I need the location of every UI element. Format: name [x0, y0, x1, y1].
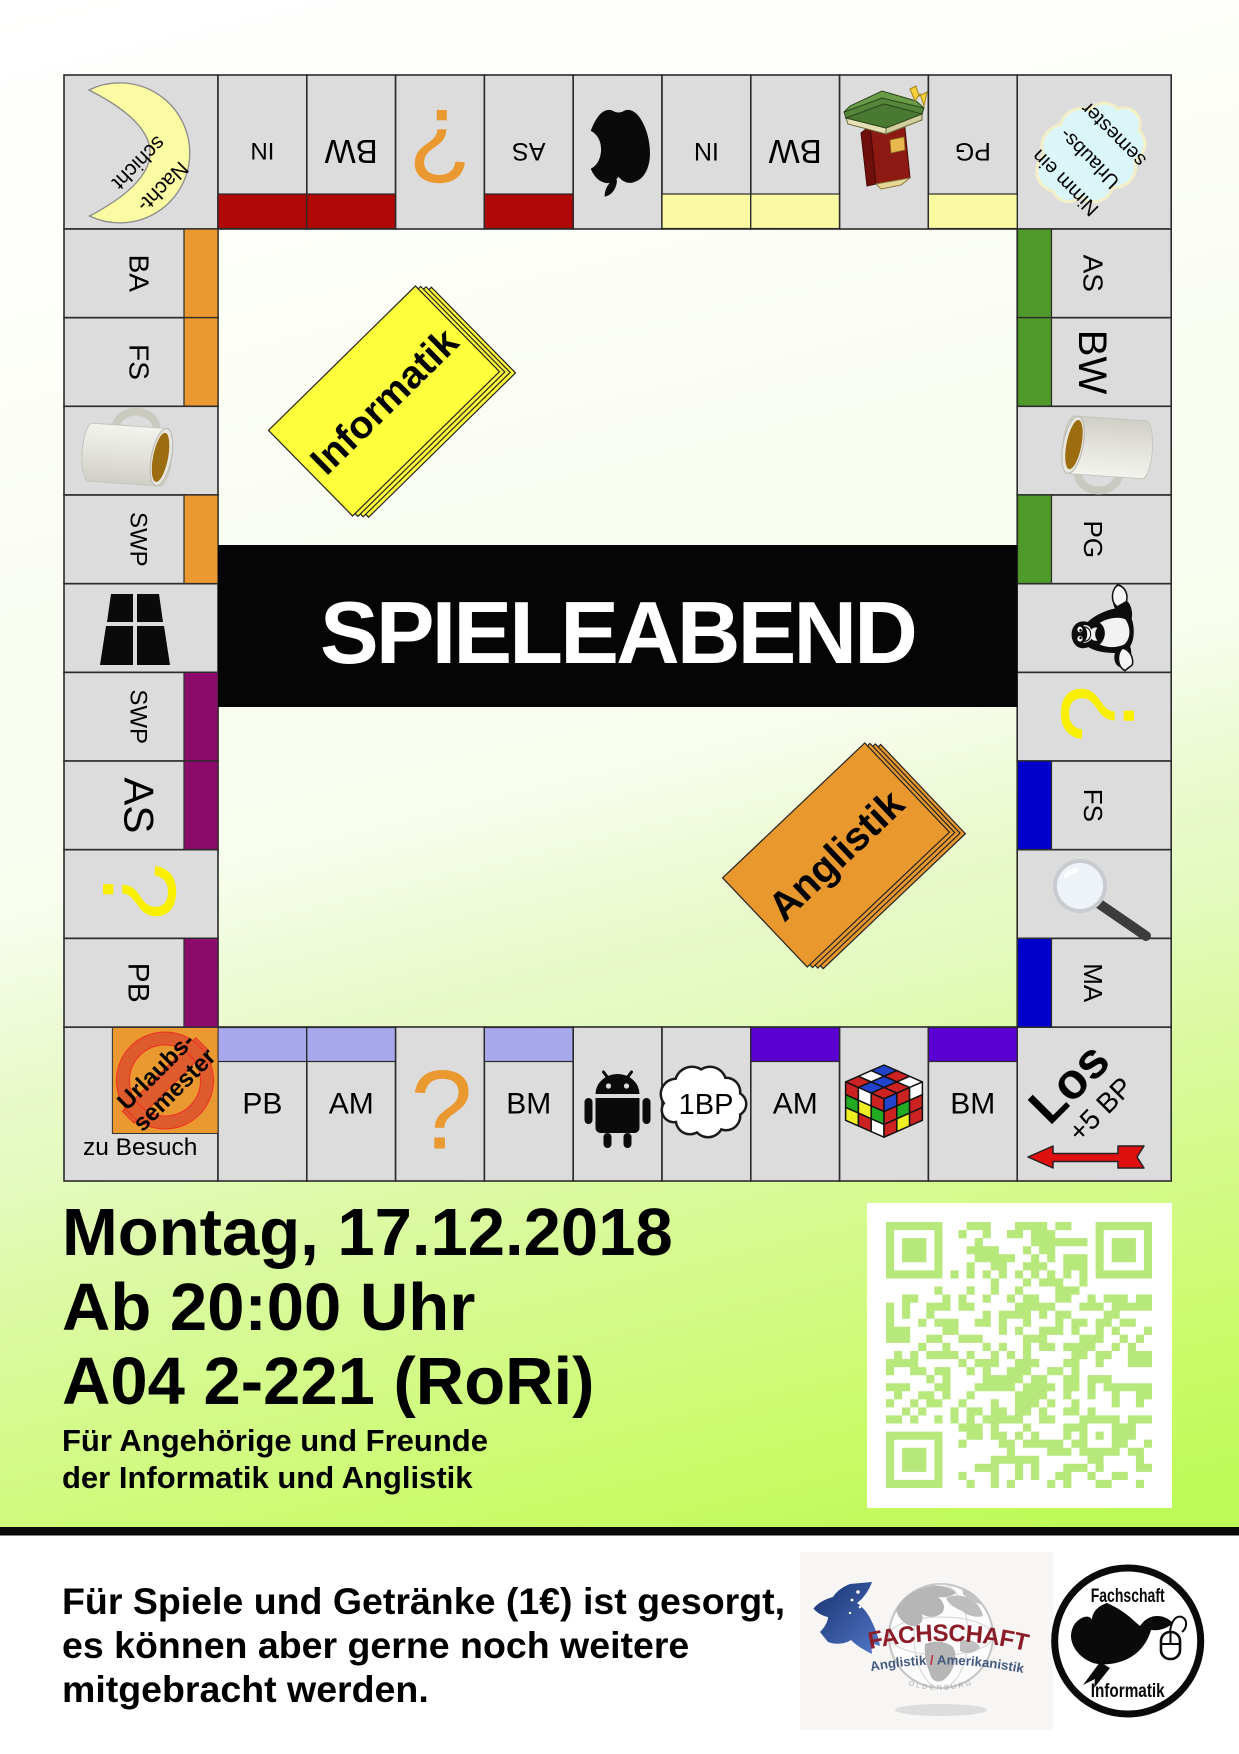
svg-text:?: ?	[1040, 685, 1157, 743]
svg-text:mitgebracht werden.: mitgebracht werden.	[62, 1668, 429, 1710]
svg-text:FS: FS	[123, 344, 154, 380]
svg-text:zu Besuch: zu Besuch	[83, 1134, 197, 1161]
svg-text:?: ?	[80, 862, 197, 920]
svg-text:BA: BA	[123, 255, 154, 293]
svg-text:Für Spiele und Getränke (1€) i: Für Spiele und Getränke (1€) ist gesorgt…	[62, 1580, 785, 1622]
svg-text:Informatik: Informatik	[1091, 1681, 1165, 1702]
svg-text:es können aber gerne noch weit: es können aber gerne noch weitere	[62, 1624, 689, 1666]
svg-text:BW: BW	[324, 133, 378, 170]
svg-text:PG: PG	[955, 137, 991, 165]
svg-text:IN: IN	[694, 137, 719, 165]
svg-text:AM: AM	[773, 1087, 818, 1120]
svg-text:1BP: 1BP	[679, 1089, 734, 1121]
svg-text:PB: PB	[242, 1087, 282, 1120]
svg-text:FS: FS	[1078, 789, 1108, 822]
svg-text:AS: AS	[1077, 255, 1108, 292]
svg-text:SWP: SWP	[125, 512, 152, 567]
svg-text:Fachschaft: Fachschaft	[1091, 1586, 1165, 1607]
svg-text:BW: BW	[768, 133, 822, 170]
svg-text:PG: PG	[1078, 521, 1108, 559]
svg-text:A04 2-221 (RoRi): A04 2-221 (RoRi)	[62, 1344, 594, 1419]
svg-text:BM: BM	[950, 1087, 995, 1120]
svg-text:?: ?	[410, 1048, 472, 1173]
svg-text:BM: BM	[506, 1087, 551, 1120]
svg-text:AS: AS	[512, 137, 545, 165]
svg-text:PB: PB	[122, 963, 155, 1003]
svg-text:AS: AS	[116, 777, 163, 833]
svg-text:?: ?	[411, 87, 469, 204]
svg-text:BW: BW	[1070, 330, 1114, 395]
svg-text:IN: IN	[250, 137, 274, 164]
svg-text:SWP: SWP	[125, 689, 152, 744]
svg-text:Montag, 17.12.2018: Montag, 17.12.2018	[62, 1195, 673, 1270]
svg-text:der Informatik und Anglistik: der Informatik und Anglistik	[62, 1460, 473, 1495]
svg-text:SPIELEABEND: SPIELEABEND	[320, 583, 915, 682]
svg-text:Ab 20:00 Uhr: Ab 20:00 Uhr	[62, 1270, 475, 1345]
svg-text:AM: AM	[329, 1087, 374, 1120]
svg-text:MA: MA	[1078, 963, 1108, 1003]
svg-text:Für Angehörige und Freunde: Für Angehörige und Freunde	[62, 1423, 488, 1458]
